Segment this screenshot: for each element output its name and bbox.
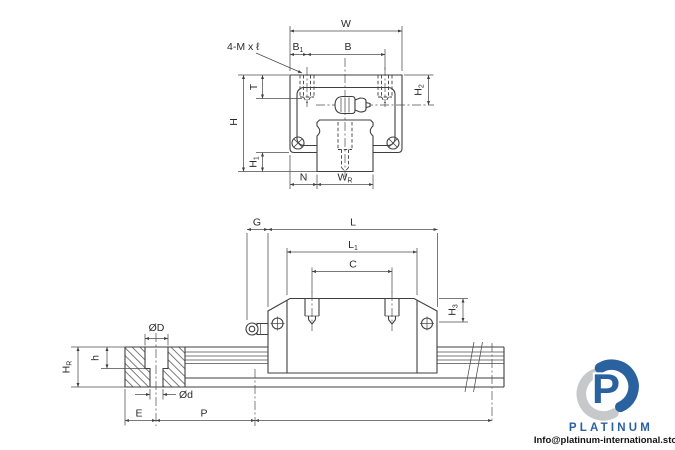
dim-label-h-small: h [90, 355, 102, 361]
thread-note: 4-M x ℓ [227, 41, 260, 53]
dim-label-dia-hole: Ød [179, 389, 193, 401]
technical-drawing: W B B1 4-M x ℓ T H H1 H2 [0, 0, 675, 450]
dim-label-c: C [349, 259, 357, 271]
block-side-outline [268, 299, 437, 374]
dim-label-wr: WR [338, 172, 353, 185]
grease-nipple-front [335, 97, 370, 114]
rail-section-hatched [125, 347, 185, 387]
dim-label-p: P [200, 408, 207, 420]
dim-label-n: N [300, 172, 308, 184]
drawing-page: W B B1 4-M x ℓ T H H1 H2 [0, 0, 675, 450]
dim-label-h: H [228, 118, 240, 126]
logo-p-letter: P [592, 365, 620, 412]
dim-label-b: B [344, 41, 351, 53]
dim-label-w: W [341, 18, 351, 30]
dim-label-t: T [248, 83, 260, 90]
logo-wordmark: PLATINUM [569, 422, 653, 434]
dim-label-h1: H1 [248, 156, 261, 168]
side-view: G L L1 C H3 ØD h H [61, 217, 505, 427]
dim-label-b1: B1 [293, 41, 304, 54]
dim-label-hr: HR [61, 361, 74, 374]
grease-nipple-side [246, 323, 268, 335]
dim-label-l1: L1 [348, 239, 358, 252]
dim-label-dia-bore: ØD [149, 322, 165, 334]
brand-logo: P PLATINUM Info@platinum-international.s… [534, 365, 675, 446]
dim-label-e: E [135, 408, 142, 420]
dim-label-g: G [253, 217, 261, 229]
dim-label-h3: H3 [447, 304, 460, 316]
dim-label-l: L [350, 217, 356, 229]
front-view: W B B1 4-M x ℓ T H H1 H2 [227, 18, 434, 189]
dim-label-h2: H2 [413, 84, 426, 96]
contact-email[interactable]: Info@platinum-international.store [534, 435, 675, 446]
